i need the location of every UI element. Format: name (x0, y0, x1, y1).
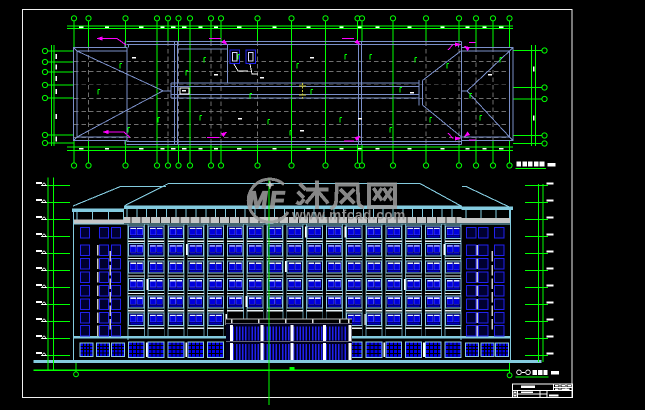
svg-text:M: M (246, 187, 270, 214)
svg-text:www.mfcad.com: www.mfcad.com (291, 208, 406, 223)
